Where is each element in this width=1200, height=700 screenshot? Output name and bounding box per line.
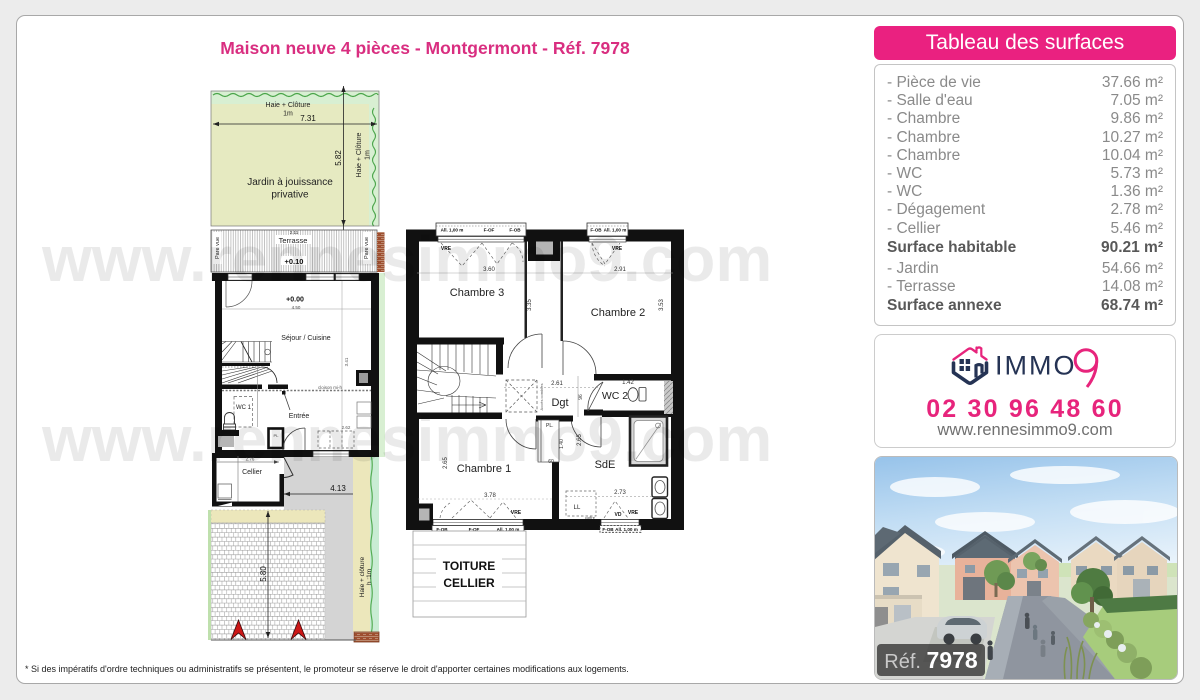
svg-text:privative: privative [271, 190, 309, 201]
svg-text:Haie + clôture: Haie + clôture [359, 556, 366, 597]
svg-text:TOITURE: TOITURE [443, 559, 495, 573]
svg-text:3.41: 3.41 [344, 357, 349, 366]
svg-text:3.53: 3.53 [659, 299, 665, 311]
svg-text:CELLIER: CELLIER [443, 576, 495, 590]
svg-text:All. 1,00 m: All. 1,00 m [615, 527, 638, 532]
svg-text:Haie + Clôture: Haie + Clôture [266, 102, 311, 109]
svg-text:5.82: 5.82 [334, 150, 343, 166]
svg-text:1m: 1m [365, 150, 372, 160]
svg-text:3.35: 3.35 [527, 299, 533, 311]
svg-text:Chambre 2: Chambre 2 [591, 307, 645, 319]
svg-text:7.31: 7.31 [300, 114, 316, 123]
svg-text:Séjour / Cuisine: Séjour / Cuisine [281, 335, 331, 342]
svg-text:coffre: coffre [585, 515, 596, 520]
svg-text:4.13: 4.13 [330, 484, 346, 493]
svg-text:F-OB: F-OB [602, 527, 614, 532]
svg-text:5.80: 5.80 [259, 566, 268, 582]
svg-text:IMMO: IMMO [995, 351, 1077, 381]
svg-text:VRE: VRE [628, 510, 639, 516]
svg-text:LL: LL [574, 505, 581, 511]
svg-text:cloison mi-h: cloison mi-h [318, 385, 343, 390]
svg-text:4.50: 4.50 [292, 305, 301, 310]
svg-text:1m: 1m [283, 111, 293, 118]
svg-text:2.61: 2.61 [551, 381, 563, 387]
svg-text:WC 2: WC 2 [602, 390, 628, 402]
svg-text:Jardin à jouissance: Jardin à jouissance [247, 177, 333, 188]
svg-text:1.42: 1.42 [622, 380, 634, 386]
svg-text:h :1m: h :1m [366, 569, 373, 585]
svg-text:Haie + Clôture: Haie + Clôture [356, 132, 363, 177]
svg-text:3.78: 3.78 [484, 493, 496, 499]
svg-text:96: 96 [578, 394, 584, 400]
svg-text:2.73: 2.73 [614, 490, 626, 496]
svg-text:VD: VD [615, 512, 622, 518]
svg-text:VRE: VRE [511, 510, 522, 516]
svg-text:+0.00: +0.00 [286, 297, 304, 304]
